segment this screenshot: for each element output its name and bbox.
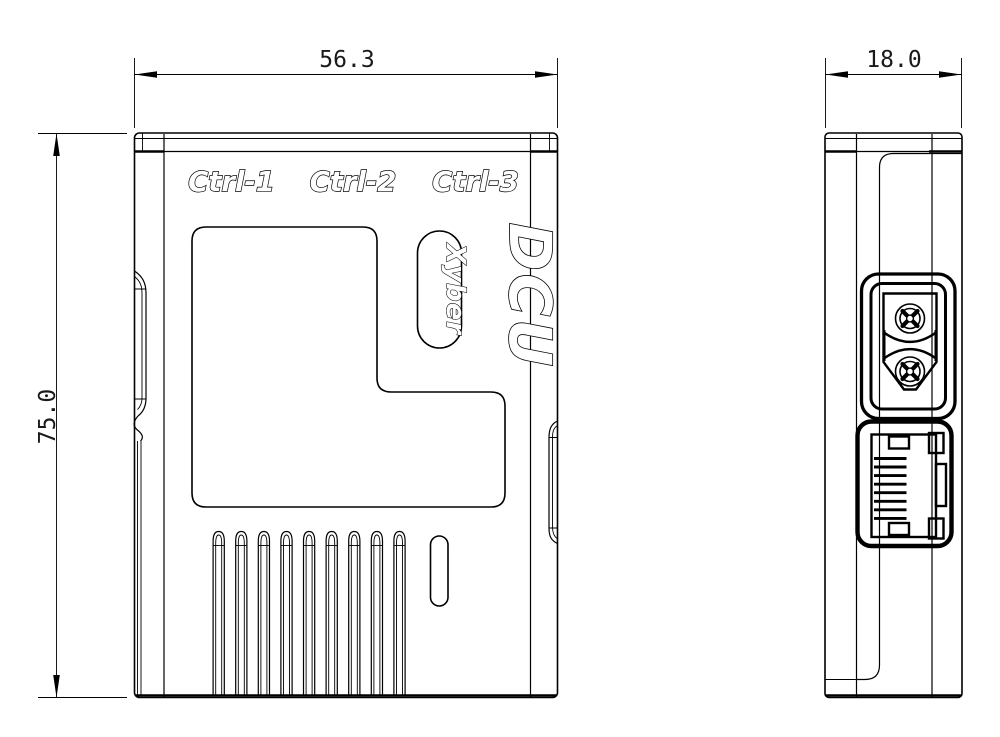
rj45-ethernet-port [858,422,952,547]
xt30-outer-bracket [862,274,956,419]
port-label-ctrl-3: Ctrl-3 [432,166,519,198]
rj45-socket-outline [872,435,937,538]
device-dimension-drawing: Ctrl-1 Ctrl-2 Ctrl-3 Xyber DCU [0,0,1000,737]
product-name-text: DCU [496,223,564,370]
side-enclosure-outline [825,133,962,698]
width-dimension: 56.3 [135,47,558,128]
dimension-arrow [53,134,60,157]
dimension-arrow [53,675,60,698]
right-snap-clip [549,421,558,544]
side-view [825,133,962,698]
vent-fins [213,532,405,697]
left-snap-clip [134,271,146,696]
rj45-bottom-key [889,523,909,535]
port-label-ctrl-2: Ctrl-2 [310,166,397,198]
vent-fin [304,532,315,697]
xt30-terminal-bottom [896,357,925,386]
vent-fin [258,532,269,697]
dimension-arrow [535,71,558,78]
height-dimension: 75.0 [35,134,127,698]
rj45-contact-pins [874,459,907,519]
front-enclosure-outline [135,133,558,698]
dimension-arrow [939,71,962,78]
front-side-wall-lines [164,134,531,697]
brand-badge-text: Xyber [440,242,470,336]
vent-fin [371,532,382,697]
dim-depth-label: 18.0 [866,47,921,73]
dim-height-label: 75.0 [35,389,61,444]
rj45-top-key [889,437,909,449]
vent-fin [213,532,224,697]
dimension-arrow [135,71,158,78]
xt30-power-connector [862,274,956,419]
technical-drawing-page: Ctrl-1 Ctrl-2 Ctrl-3 Xyber DCU [0,0,1000,737]
dim-width-label: 56.3 [319,47,374,73]
rj45-latch-slot [936,464,946,506]
xt30-terminal-top [896,304,925,333]
oval-slot [431,536,449,606]
dimension-arrow [826,71,849,78]
vent-fin [394,532,405,697]
vent-fin [326,532,337,697]
depth-dimension: 18.0 [826,47,962,128]
front-cap-ticks [143,133,550,152]
port-label-ctrl-1: Ctrl-1 [188,166,275,198]
vent-fin [281,532,292,697]
front-view: Ctrl-1 Ctrl-2 Ctrl-3 Xyber DCU [134,133,564,698]
vent-fin [349,532,360,697]
vent-fin [236,532,247,697]
